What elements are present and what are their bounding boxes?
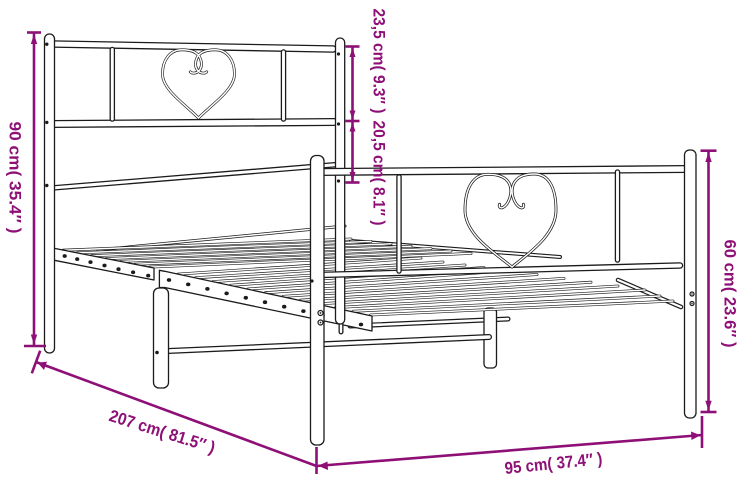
svg-text:90 cm( 35.4″ ): 90 cm( 35.4″ ) [6, 122, 25, 234]
svg-text:20,5 cm( 8.1″ ): 20,5 cm( 8.1″ ) [370, 121, 389, 226]
svg-text:23,5 cm( 9.3″ ): 23,5 cm( 9.3″ ) [370, 9, 389, 114]
svg-text:60 cm( 23.6″ ): 60 cm( 23.6″ ) [721, 240, 740, 348]
